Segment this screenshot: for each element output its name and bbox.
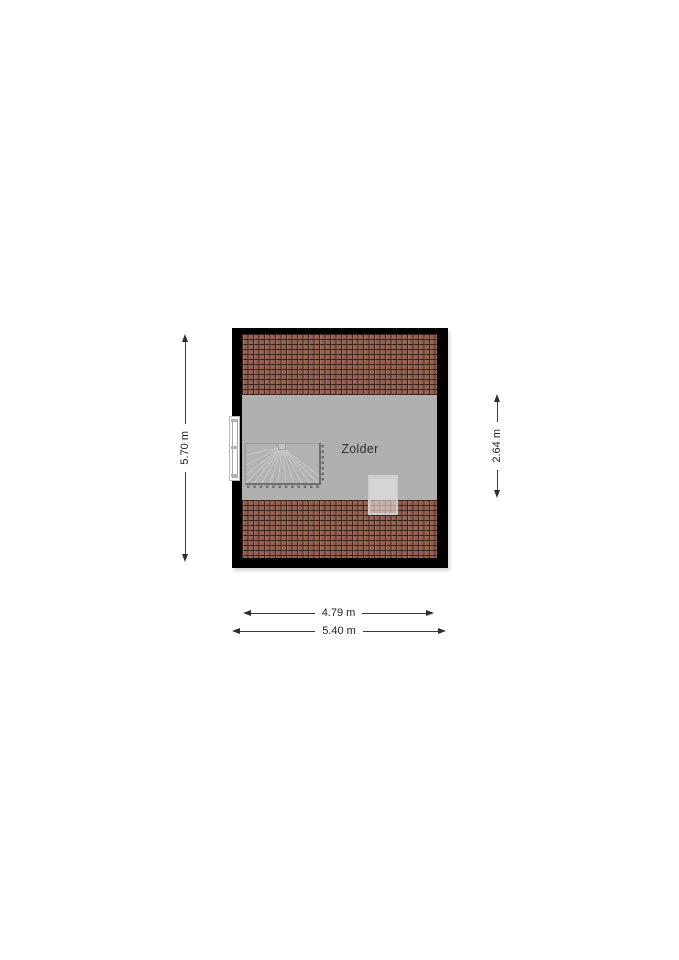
floorplan-attic: Zolder (232, 328, 448, 568)
arrow-up-icon (494, 394, 500, 402)
roof-tiles-bottom (242, 500, 437, 558)
arrow-down-icon (182, 554, 188, 562)
dimension-right-floor-height: 2.64 m (491, 394, 503, 498)
roof-tiles-top (242, 334, 437, 395)
window (229, 416, 240, 481)
dimension-left-total-height: 5.70 m (179, 334, 191, 562)
dimension-bottom-total-width: 5.40 m (232, 625, 446, 637)
dimension-label: 5.70 m (179, 424, 191, 472)
window-glass (232, 420, 238, 478)
arrow-left-icon (232, 628, 240, 634)
arrow-up-icon (182, 334, 188, 342)
dimension-label: 2.64 m (491, 422, 503, 470)
dimension-label: 5.40 m (315, 625, 363, 637)
staircase (245, 443, 325, 489)
room-label: Zolder (316, 442, 404, 456)
dimension-bottom-inner-width: 4.79 m (243, 607, 434, 619)
arrow-left-icon (243, 610, 251, 616)
stair-pivot (279, 444, 286, 450)
dimension-label: 4.79 m (315, 607, 363, 619)
floorplan-canvas: Zolder 5.70 m 2.64 m 4.79 m 5 (0, 0, 679, 960)
arrow-right-icon (426, 610, 434, 616)
arrow-down-icon (494, 490, 500, 498)
arrow-right-icon (438, 628, 446, 634)
skylight-window (368, 475, 398, 515)
